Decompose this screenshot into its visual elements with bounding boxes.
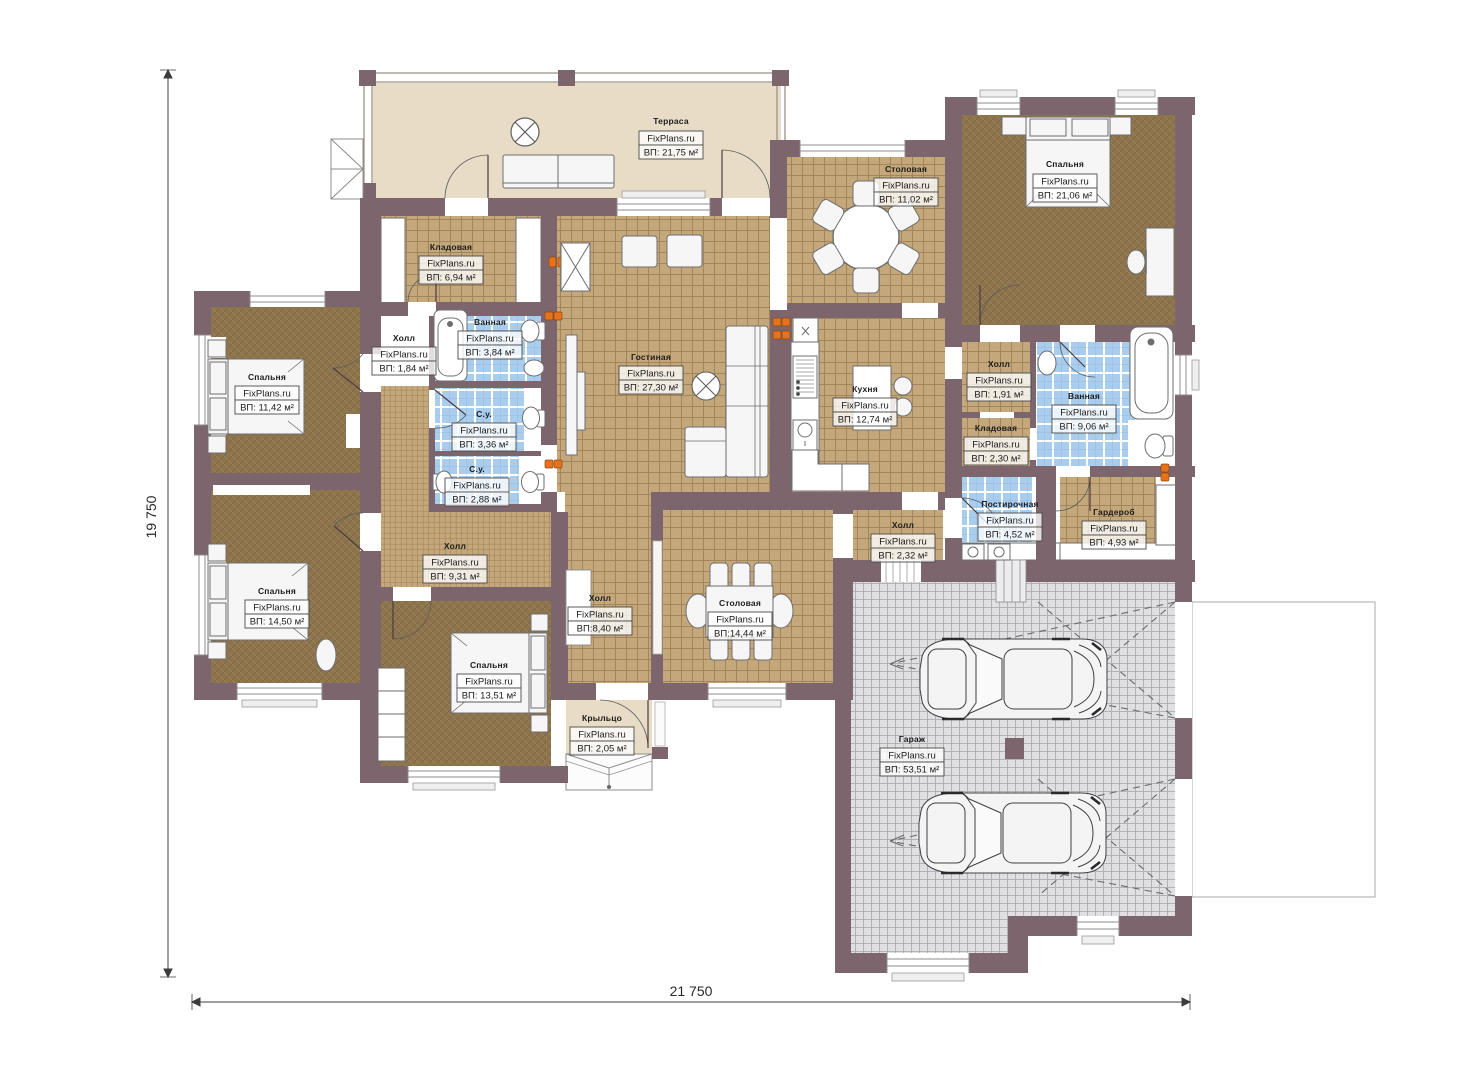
svg-text:FixPlans.ru: FixPlans.ru	[1041, 177, 1089, 188]
svg-text:ВП: 9,06 м²: ВП: 9,06 м²	[1059, 422, 1108, 433]
svg-text:FixPlans.ru: FixPlans.ru	[460, 426, 508, 437]
svg-text:21 750: 21 750	[670, 983, 713, 999]
svg-text:FixPlans.ru: FixPlans.ru	[879, 537, 927, 548]
svg-text:ВП: 6,94 м²: ВП: 6,94 м²	[426, 273, 475, 284]
svg-text:Спальня: Спальня	[258, 586, 296, 596]
svg-text:FixPlans.ru: FixPlans.ru	[627, 369, 675, 380]
svg-text:ВП: 2,32 м²: ВП: 2,32 м²	[878, 551, 927, 562]
svg-text:FixPlans.ru: FixPlans.ru	[466, 334, 514, 345]
svg-text:ВП: 3,36 м²: ВП: 3,36 м²	[459, 440, 508, 451]
svg-text:Холл: Холл	[589, 593, 611, 603]
svg-text:Гараж: Гараж	[899, 734, 926, 744]
svg-text:FixPlans.ru: FixPlans.ru	[576, 610, 624, 621]
svg-text:ВП: 4,93 м²: ВП: 4,93 м²	[1089, 538, 1138, 549]
svg-text:FixPlans.ru: FixPlans.ru	[253, 603, 301, 614]
svg-text:Спальня: Спальня	[470, 660, 508, 670]
svg-text:ВП: 14,50 м²: ВП: 14,50 м²	[250, 617, 305, 628]
svg-text:FixPlans.ru: FixPlans.ru	[972, 440, 1020, 451]
svg-text:Терраса: Терраса	[653, 116, 689, 126]
svg-text:Ванная: Ванная	[474, 317, 506, 327]
svg-text:ВП: 13,51 м²: ВП: 13,51 м²	[462, 691, 517, 702]
svg-text:19 750: 19 750	[143, 495, 159, 538]
svg-text:Кладовая: Кладовая	[430, 242, 472, 252]
svg-text:FixPlans.ru: FixPlans.ru	[647, 134, 695, 145]
svg-text:ВП: 21,75 м²: ВП: 21,75 м²	[644, 148, 699, 159]
svg-text:ВП: 11,02 м²: ВП: 11,02 м²	[879, 195, 933, 206]
svg-text:FixPlans.ru: FixPlans.ru	[975, 376, 1023, 387]
svg-text:Гардероб: Гардероб	[1093, 507, 1135, 517]
svg-text:FixPlans.ru: FixPlans.ru	[431, 558, 479, 569]
svg-text:Холл: Холл	[444, 541, 466, 551]
svg-text:FixPlans.ru: FixPlans.ru	[465, 677, 513, 688]
svg-text:FixPlans.ru: FixPlans.ru	[380, 350, 428, 361]
svg-text:Холл: Холл	[393, 333, 415, 343]
svg-text:С.у.: С.у.	[476, 409, 492, 419]
svg-text:FixPlans.ru: FixPlans.ru	[888, 751, 936, 762]
svg-text:Ванная: Ванная	[1068, 391, 1100, 401]
svg-text:ВП: 2,88 м²: ВП: 2,88 м²	[452, 495, 501, 506]
svg-text:Холл: Холл	[892, 520, 914, 530]
svg-text:ВП: 1,84 м²: ВП: 1,84 м²	[379, 364, 428, 375]
svg-text:Холл: Холл	[988, 359, 1010, 369]
svg-text:ВП: 21,06 м²: ВП: 21,06 м²	[1038, 191, 1093, 202]
svg-text:ВП:14,44 м²: ВП:14,44 м²	[714, 629, 766, 640]
svg-text:Кладовая: Кладовая	[975, 423, 1017, 433]
svg-text:Спальня: Спальня	[1046, 159, 1084, 169]
svg-text:Спальня: Спальня	[248, 372, 286, 382]
svg-text:FixPlans.ru: FixPlans.ru	[841, 401, 889, 412]
svg-text:Кухня: Кухня	[852, 384, 878, 394]
svg-text:ВП: 53,51 м²: ВП: 53,51 м²	[885, 765, 940, 776]
svg-text:С.у.: С.у.	[469, 464, 485, 474]
svg-text:Столовая: Столовая	[885, 164, 927, 174]
svg-text:ВП:8,40 м²: ВП:8,40 м²	[577, 624, 624, 635]
svg-text:FixPlans.ru: FixPlans.ru	[243, 389, 291, 400]
svg-text:ВП: 4,52 м²: ВП: 4,52 м²	[985, 530, 1034, 541]
svg-text:ВП: 11,42 м²: ВП: 11,42 м²	[240, 403, 294, 414]
svg-text:FixPlans.ru: FixPlans.ru	[882, 181, 930, 192]
svg-text:ВП: 1,91 м²: ВП: 1,91 м²	[974, 390, 1023, 401]
svg-text:ВП: 2,05 м²: ВП: 2,05 м²	[577, 744, 626, 755]
svg-text:FixPlans.ru: FixPlans.ru	[1060, 408, 1108, 419]
svg-text:FixPlans.ru: FixPlans.ru	[453, 481, 501, 492]
svg-text:Постирочная: Постирочная	[981, 499, 1038, 509]
svg-text:FixPlans.ru: FixPlans.ru	[716, 615, 764, 626]
svg-text:ВП: 2,30 м²: ВП: 2,30 м²	[971, 454, 1020, 465]
svg-text:FixPlans.ru: FixPlans.ru	[1090, 524, 1138, 535]
svg-text:Крыльцо: Крыльцо	[582, 713, 622, 723]
svg-text:Столовая: Столовая	[719, 598, 761, 608]
svg-text:FixPlans.ru: FixPlans.ru	[427, 259, 475, 270]
svg-text:ВП: 9,31 м²: ВП: 9,31 м²	[430, 572, 479, 583]
svg-text:Гостиная: Гостиная	[631, 352, 671, 362]
svg-text:ВП: 27,30 м²: ВП: 27,30 м²	[624, 383, 679, 394]
svg-text:ВП: 12,74 м²: ВП: 12,74 м²	[838, 415, 893, 426]
svg-text:ВП: 3,84 м²: ВП: 3,84 м²	[465, 348, 514, 359]
svg-text:FixPlans.ru: FixPlans.ru	[578, 730, 626, 741]
svg-text:FixPlans.ru: FixPlans.ru	[986, 516, 1034, 527]
